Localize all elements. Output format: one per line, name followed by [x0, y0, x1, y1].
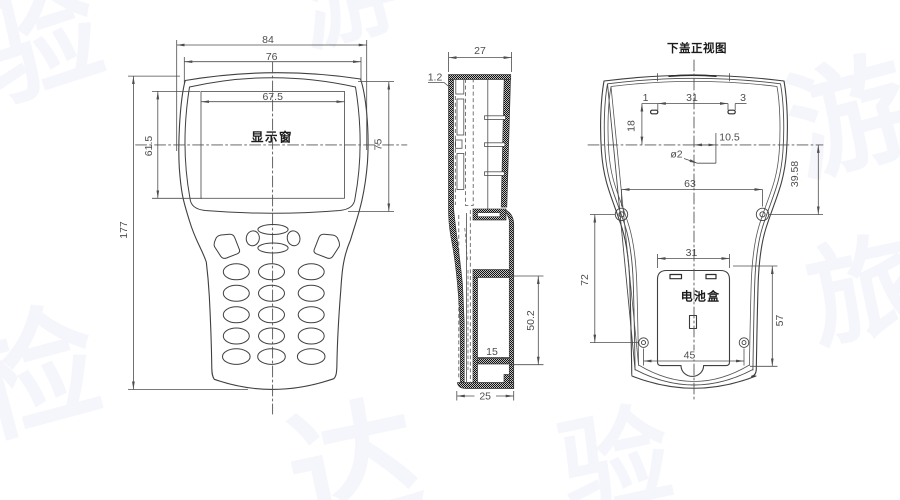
svg-text:57: 57 [774, 315, 786, 327]
svg-text:18: 18 [626, 120, 638, 132]
svg-text:电池盒: 电池盒 [681, 289, 721, 304]
svg-text:84: 84 [262, 34, 274, 46]
svg-text:45: 45 [684, 350, 696, 362]
svg-text:检: 检 [0, 287, 115, 462]
svg-text:1.2: 1.2 [428, 72, 443, 84]
svg-text:63: 63 [684, 178, 696, 190]
svg-text:15: 15 [486, 346, 498, 358]
svg-text:72: 72 [579, 274, 591, 286]
svg-text:31: 31 [686, 92, 698, 104]
svg-text:39.58: 39.58 [789, 161, 801, 187]
svg-text:27: 27 [474, 45, 486, 57]
svg-text:61.5: 61.5 [143, 136, 155, 157]
svg-text:ø2: ø2 [670, 149, 682, 161]
svg-text:下盖正视图: 下盖正视图 [667, 41, 727, 55]
svg-text:67.5: 67.5 [262, 91, 283, 103]
svg-text:验: 验 [549, 392, 682, 500]
svg-text:游: 游 [284, 0, 410, 66]
svg-text:50.2: 50.2 [525, 310, 537, 331]
svg-text:75: 75 [373, 139, 385, 151]
svg-text:177: 177 [118, 221, 130, 239]
svg-text:3: 3 [740, 92, 746, 104]
svg-text:31: 31 [686, 247, 698, 259]
svg-text:显示窗: 显示窗 [251, 130, 293, 145]
svg-text:10.5: 10.5 [719, 132, 740, 144]
svg-text:验: 验 [0, 0, 118, 125]
svg-text:1: 1 [643, 92, 649, 104]
svg-text:旅: 旅 [797, 220, 900, 363]
svg-text:25: 25 [479, 391, 491, 403]
svg-text:76: 76 [266, 51, 278, 63]
svg-text:达: 达 [275, 381, 433, 500]
